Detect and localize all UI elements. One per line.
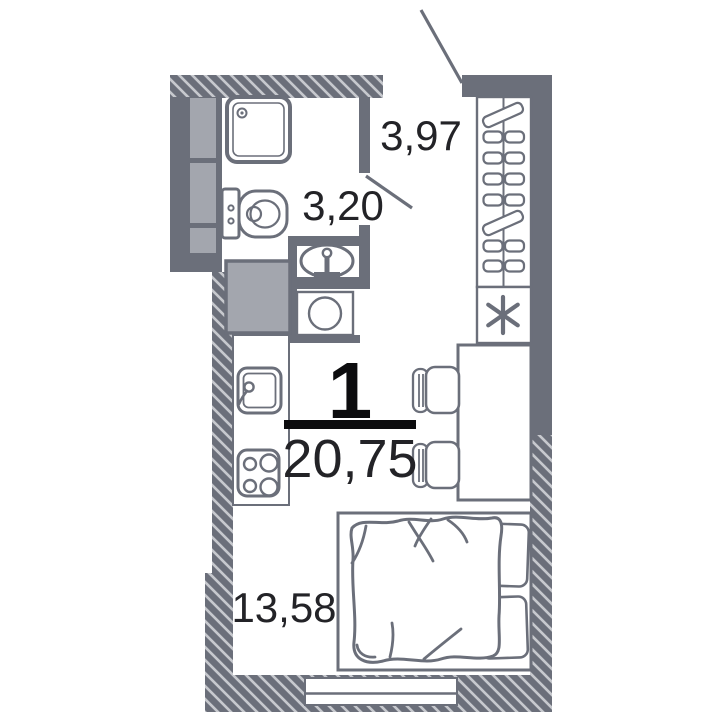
wall-left-low-hatched <box>205 573 233 675</box>
blanket <box>351 517 502 662</box>
washing-machine <box>297 292 353 335</box>
unit-total-area: 20,75 <box>282 429 417 489</box>
window-glass <box>305 678 457 705</box>
wall-under-washer <box>288 335 360 343</box>
wall-niche-bottom <box>288 277 370 289</box>
kitchen-sink <box>238 368 281 413</box>
vent-shaft <box>190 163 216 223</box>
shower-tray <box>227 97 290 162</box>
wall-right-low-hatched <box>530 435 552 712</box>
wall-bathroom-right-upper <box>359 97 370 173</box>
bed <box>338 513 531 670</box>
wall-top-right <box>462 75 552 97</box>
dining-table <box>458 345 531 500</box>
wardrobe <box>477 97 531 287</box>
toilet <box>222 189 287 238</box>
area-label-bathroom: 3,20 <box>302 182 384 229</box>
wall-top-hatched <box>170 75 383 98</box>
area-label-hallway: 3,97 <box>380 112 462 159</box>
chair <box>413 442 459 488</box>
wall-right-upper <box>530 97 552 435</box>
area-label-living: 13,58 <box>231 584 336 631</box>
entrance-door <box>421 10 462 83</box>
chair <box>413 367 459 413</box>
floor-plan: 3,97 3,20 1 20,75 13,58 <box>0 0 720 720</box>
entrance-door-leaf <box>421 10 462 83</box>
floor-plan-svg: 3,97 3,20 1 20,75 13,58 <box>0 0 720 720</box>
duct-block <box>226 261 290 333</box>
window <box>305 678 457 705</box>
hob <box>238 450 279 496</box>
ventilation-shafts <box>190 98 216 253</box>
washbasin <box>301 245 353 277</box>
fraction-bar <box>284 420 416 429</box>
vent-shaft <box>190 98 216 158</box>
vent-shaft <box>190 228 216 253</box>
refrigerator <box>477 287 531 343</box>
